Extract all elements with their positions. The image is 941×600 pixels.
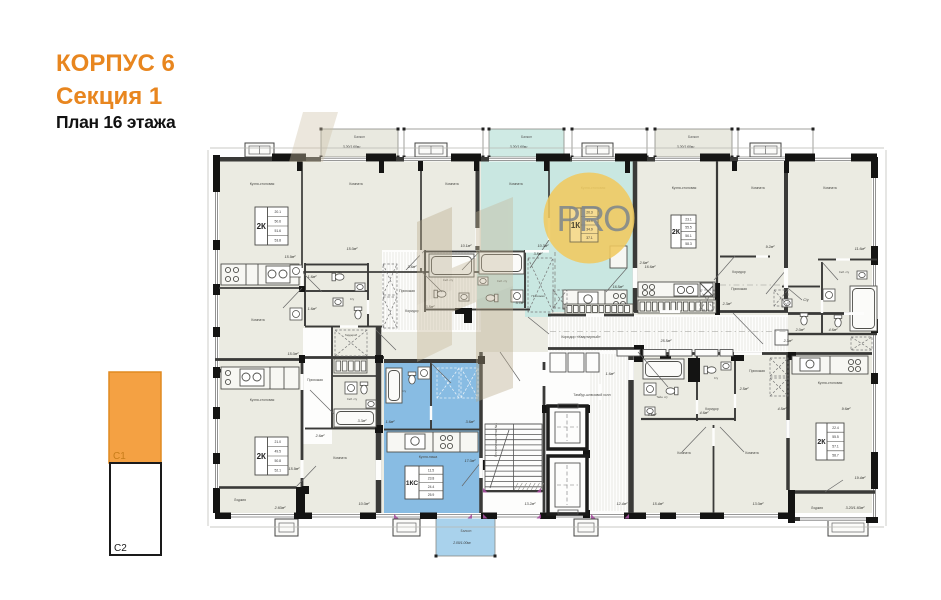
svg-text:3.6м²: 3.6м² xyxy=(408,265,417,269)
svg-text:Тайн. с/у: Тайн. с/у xyxy=(656,395,668,399)
svg-text:1КС: 1КС xyxy=(406,480,418,487)
svg-text:2.6м²: 2.6м² xyxy=(639,261,649,265)
svg-text:16.6м²: 16.6м² xyxy=(645,265,656,269)
svg-text:Прихожая: Прихожая xyxy=(731,287,747,291)
svg-text:25.5м²: 25.5м² xyxy=(660,339,672,343)
svg-text:1.6м²: 1.6м² xyxy=(386,420,395,424)
svg-text:Коридор «Квартирный»: Коридор «Квартирный» xyxy=(561,335,600,339)
svg-text:52.1: 52.1 xyxy=(274,469,281,473)
svg-text:15.0м²: 15.0м² xyxy=(288,352,299,356)
svg-text:Комната: Комната xyxy=(445,182,458,186)
svg-text:2.3м²: 2.3м² xyxy=(783,339,793,343)
svg-text:С/у: С/у xyxy=(714,376,719,380)
svg-text:57.1: 57.1 xyxy=(832,444,839,448)
svg-text:Балкон: Балкон xyxy=(688,135,699,139)
svg-text:Коридор: Коридор xyxy=(405,309,419,313)
svg-text:4.5м²: 4.5м² xyxy=(648,413,657,417)
svg-text:Прихожая: Прихожая xyxy=(399,289,415,293)
svg-text:1.6м²: 1.6м² xyxy=(308,307,317,311)
svg-text:Комната: Комната xyxy=(677,451,690,455)
svg-text:С/у: С/у xyxy=(350,297,355,301)
svg-text:25.9: 25.9 xyxy=(428,493,435,497)
svg-text:24.4: 24.4 xyxy=(428,485,435,489)
svg-text:10.1м²: 10.1м² xyxy=(461,244,472,248)
svg-text:Кухня-столовая: Кухня-столовая xyxy=(818,381,843,385)
svg-text:3.20/1.60м²: 3.20/1.60м² xyxy=(846,506,865,510)
svg-text:2К: 2К xyxy=(817,439,826,446)
svg-text:4.5м²: 4.5м² xyxy=(778,407,787,411)
svg-text:КОРПУС 6: КОРПУС 6 xyxy=(56,50,175,77)
svg-text:17.0м²: 17.0м² xyxy=(465,459,476,463)
svg-text:C2: C2 xyxy=(114,543,127,554)
svg-text:10.3м²: 10.3м² xyxy=(538,244,549,248)
svg-text:50.6: 50.6 xyxy=(274,220,281,224)
svg-text:Комната: Комната xyxy=(251,318,264,322)
svg-text:3.20/1.60м²: 3.20/1.60м² xyxy=(510,145,528,149)
svg-text:56.1: 56.1 xyxy=(685,234,692,238)
svg-text:План 16 этажа: План 16 этажа xyxy=(56,112,176,132)
svg-text:2.3м²: 2.3м² xyxy=(722,302,732,306)
svg-text:С/у: С/у xyxy=(338,270,343,274)
svg-text:12.4м²: 12.4м² xyxy=(617,502,628,506)
svg-text:Лестничная клетка №1: Лестничная клетка №1 xyxy=(494,423,498,457)
svg-text:Коридор: Коридор xyxy=(732,270,746,274)
svg-text:1.6м²: 1.6м² xyxy=(308,275,317,279)
svg-text:15.9м²: 15.9м² xyxy=(285,255,296,259)
svg-text:PRO: PRO xyxy=(556,198,630,239)
svg-text:Комната: Комната xyxy=(333,456,346,460)
svg-text:15.0м²: 15.0м² xyxy=(347,247,358,251)
svg-text:Балкон: Балкон xyxy=(354,135,365,139)
svg-text:22.4: 22.4 xyxy=(832,426,839,430)
svg-text:23.1: 23.1 xyxy=(685,217,692,221)
svg-text:10.0м²: 10.0м² xyxy=(359,502,370,506)
svg-text:2.60м²: 2.60м² xyxy=(274,506,286,510)
svg-text:58.3: 58.3 xyxy=(685,242,692,246)
svg-text:2.00/1.00м²: 2.00/1.00м² xyxy=(452,541,471,545)
svg-text:Комната: Комната xyxy=(751,186,764,190)
svg-text:Балкон: Балкон xyxy=(521,135,532,139)
svg-text:19.4м²: 19.4м² xyxy=(855,476,866,480)
svg-text:2.5м²: 2.5м² xyxy=(739,387,749,391)
svg-text:2К: 2К xyxy=(672,229,681,236)
svg-text:Балкон: Балкон xyxy=(461,529,472,533)
svg-text:51.6: 51.6 xyxy=(274,229,281,233)
svg-text:15.9м²: 15.9м² xyxy=(289,467,300,471)
svg-text:3.6м²: 3.6м² xyxy=(466,420,475,424)
svg-text:Тамбур-шлюзовой холл: Тамбур-шлюзовой холл xyxy=(573,393,610,397)
svg-text:2К: 2К xyxy=(257,222,266,231)
svg-text:Комната: Комната xyxy=(509,182,522,186)
svg-text:53.8: 53.8 xyxy=(274,239,281,243)
svg-text:11.5: 11.5 xyxy=(428,468,434,472)
svg-text:3.7м²: 3.7м² xyxy=(516,301,525,305)
svg-text:Кухня-столовая: Кухня-столовая xyxy=(250,398,275,402)
svg-text:Прихожая: Прихожая xyxy=(307,378,323,382)
svg-text:49.5: 49.5 xyxy=(274,450,281,454)
svg-text:58.7: 58.7 xyxy=(832,454,839,458)
svg-text:4.6м²: 4.6м² xyxy=(700,411,709,415)
svg-text:Комната: Комната xyxy=(745,451,758,455)
svg-text:Кухня-столовая: Кухня-столовая xyxy=(250,182,275,186)
svg-text:50.8: 50.8 xyxy=(274,459,281,463)
svg-text:1.6м²: 1.6м² xyxy=(606,372,615,376)
svg-text:4.6м²: 4.6м² xyxy=(829,328,838,332)
svg-text:С/у: С/у xyxy=(803,298,809,302)
svg-text:3.20/1.60м²: 3.20/1.60м² xyxy=(343,145,361,149)
svg-text:20.1: 20.1 xyxy=(274,210,281,214)
svg-text:С/у: С/у xyxy=(402,389,407,393)
svg-text:Кухня-столовая: Кухня-столовая xyxy=(672,186,697,190)
svg-text:Лоджия: Лоджия xyxy=(234,498,246,502)
svg-text:16.5м²: 16.5м² xyxy=(613,285,624,289)
svg-text:15.4м²: 15.4м² xyxy=(653,502,664,506)
svg-text:Комната: Комната xyxy=(823,186,836,190)
svg-text:23.8: 23.8 xyxy=(428,477,435,481)
svg-text:3.3м²: 3.3м² xyxy=(358,419,367,423)
svg-text:3.20/1.60м²: 3.20/1.60м² xyxy=(677,145,695,149)
svg-text:55.5: 55.5 xyxy=(685,226,692,230)
svg-text:Гардероб: Гардероб xyxy=(345,333,358,337)
svg-text:Комната: Комната xyxy=(349,182,362,186)
svg-text:Себ. с/у: Себ. с/у xyxy=(839,270,850,274)
svg-text:C1: C1 xyxy=(113,451,126,462)
svg-text:2.6м²: 2.6м² xyxy=(315,434,325,438)
svg-text:Секция 1: Секция 1 xyxy=(56,83,162,110)
svg-text:9.2м²: 9.2м² xyxy=(766,245,775,249)
svg-text:3.8м²: 3.8м² xyxy=(534,252,543,256)
svg-text:Прихожая: Прихожая xyxy=(532,294,545,298)
svg-text:13.0м²: 13.0м² xyxy=(753,502,764,506)
svg-text:55.5: 55.5 xyxy=(832,435,839,439)
svg-text:9.6м²: 9.6м² xyxy=(842,407,851,411)
svg-text:2.0м²: 2.0м² xyxy=(795,328,805,332)
svg-text:Себ. с/у: Себ. с/у xyxy=(347,397,358,401)
svg-text:13.2м²: 13.2м² xyxy=(525,502,536,506)
svg-text:21.0: 21.0 xyxy=(274,440,281,444)
svg-text:Прихожая: Прихожая xyxy=(749,369,765,373)
svg-text:2К: 2К xyxy=(257,452,266,461)
svg-text:Лоджия: Лоджия xyxy=(811,506,823,510)
svg-text:11.6м²: 11.6м² xyxy=(855,247,866,251)
svg-text:Кухня-ниша: Кухня-ниша xyxy=(419,455,438,459)
